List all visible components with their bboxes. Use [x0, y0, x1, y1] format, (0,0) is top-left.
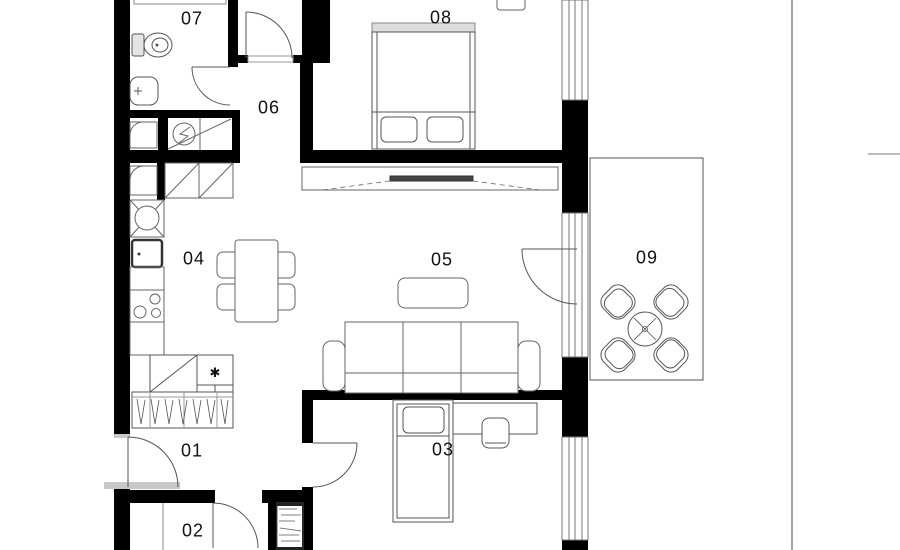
washing-machine-icon [130, 200, 164, 237]
wall-room02-north-left [128, 490, 215, 503]
walls [114, 0, 588, 550]
closet-marker: ✱ [210, 365, 221, 380]
balcony-chair-icon [650, 281, 692, 323]
wall-right-seg3 [562, 540, 588, 550]
wardrobe-upper-icon [150, 355, 233, 392]
wall-room03-left-upper [302, 390, 313, 443]
counter-segment-2 [130, 322, 164, 355]
room-label-07: 07 [181, 9, 203, 30]
wall-room02-north-right [262, 490, 313, 503]
wardrobe-hanging-icon [132, 392, 233, 428]
room-label-05: 05 [431, 250, 453, 271]
dining-set [217, 240, 295, 322]
headboard-icon [372, 23, 475, 32]
wall-right-seg1 [562, 100, 588, 213]
wall-shaft-strip [157, 163, 165, 200]
door-room03 [313, 443, 357, 487]
nightstand-icon [497, 0, 525, 10]
kitchen-sink-icon [132, 240, 162, 267]
wall-right-seg2 [562, 357, 588, 437]
balcony-outline [590, 158, 703, 380]
shelf-unit-icon [277, 503, 303, 550]
wall-closet-left [158, 118, 168, 150]
coffee-table-icon [398, 278, 468, 308]
site-lines [792, 0, 900, 550]
shaft-upper-icon [130, 122, 157, 148]
hob-icon [130, 290, 164, 322]
wall-room08-left [300, 55, 313, 163]
room-label-06: 06 [258, 98, 280, 119]
wall-closet-right [232, 118, 240, 150]
living-room [302, 167, 558, 393]
pillow-icon [427, 117, 463, 142]
counter-segment [130, 267, 164, 290]
room-label-08: 08 [430, 8, 452, 29]
wall-left-upper [114, 0, 130, 438]
bathtub-cut-icon [134, 0, 226, 4]
tall-cabinets-icon [165, 163, 233, 198]
window-room03 [562, 437, 588, 540]
toilet-icon [132, 33, 172, 57]
threshold-corridor-door [248, 56, 293, 62]
balcony-table-icon [628, 312, 662, 346]
floor-plan-drawing: ✱ [0, 0, 900, 550]
room-label-03: 03 [432, 440, 454, 461]
wall-bathroom-bottom [114, 110, 240, 118]
balcony [590, 158, 703, 380]
door-bathroom [192, 67, 230, 105]
bedroom-03 [393, 400, 537, 522]
windows [562, 0, 588, 540]
doors [128, 12, 577, 548]
floor-plan: ✱ [0, 0, 900, 550]
wall-top-column [302, 0, 330, 63]
tv-icon [390, 176, 473, 181]
desk-chair-icon [482, 418, 509, 448]
wall-living-north [300, 150, 563, 163]
shaft-lower-icon [130, 166, 157, 195]
door-room02 [213, 503, 258, 548]
window-balcony-door [562, 213, 588, 357]
bathroom-fixtures [130, 0, 226, 105]
wall-kitchen-north [114, 150, 240, 163]
door-corridor-top [246, 12, 292, 58]
pillow-icon [381, 117, 417, 142]
room-label-04: 04 [183, 249, 205, 270]
wall-shelf-left [268, 503, 277, 550]
pillow-icon [403, 407, 444, 433]
sofa-icon [323, 322, 540, 393]
door-entry [128, 437, 178, 487]
wall-left-lower [114, 488, 130, 550]
dining-table-icon [235, 240, 278, 322]
threshold-entry-door [104, 482, 180, 489]
hand-basin-icon [130, 77, 158, 105]
room-label-09: 09 [636, 248, 658, 269]
clothes-zigzag [137, 399, 228, 424]
balcony-chair-icon [597, 334, 639, 376]
room-label-01: 01 [181, 441, 203, 462]
balcony-chair-icon [650, 334, 692, 376]
window-room08 [562, 0, 588, 100]
room-label-02: 02 [182, 521, 204, 542]
